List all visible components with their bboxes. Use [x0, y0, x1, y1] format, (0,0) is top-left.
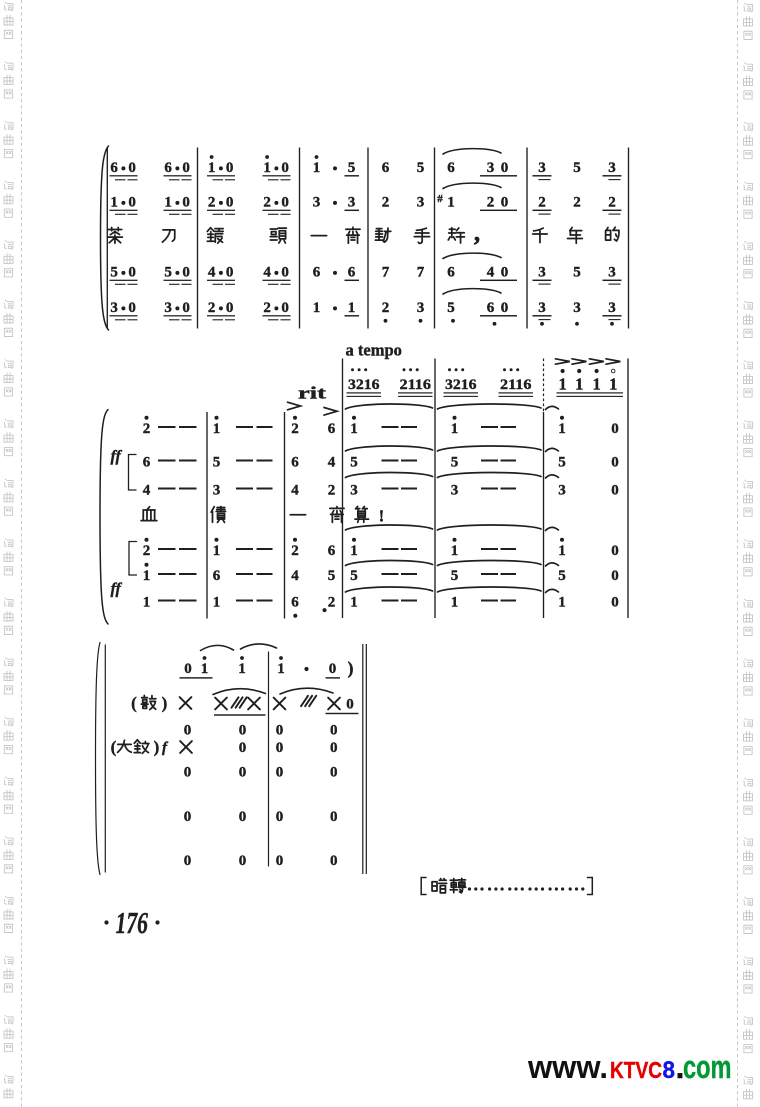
svg-text:0: 0 — [128, 160, 136, 176]
svg-text:0: 0 — [184, 853, 192, 869]
svg-text:0: 0 — [128, 194, 136, 210]
svg-text:6: 6 — [328, 543, 336, 559]
svg-text:2: 2 — [143, 421, 151, 437]
svg-text:176: 176 — [116, 905, 149, 940]
svg-text:0: 0 — [329, 661, 337, 677]
svg-text:1: 1 — [238, 661, 246, 677]
svg-text:6: 6 — [382, 160, 390, 176]
svg-text:0: 0 — [281, 160, 289, 176]
svg-text:0: 0 — [346, 696, 354, 712]
svg-text:4: 4 — [291, 482, 299, 498]
svg-text:6: 6 — [447, 160, 455, 176]
svg-text:2: 2 — [263, 194, 271, 210]
svg-text:1: 1 — [213, 594, 221, 610]
svg-text:1: 1 — [263, 160, 271, 176]
svg-text:0: 0 — [128, 300, 136, 316]
svg-text:1: 1 — [609, 374, 617, 393]
svg-text:0: 0 — [501, 194, 509, 210]
svg-text:6: 6 — [313, 264, 321, 280]
svg-text:0: 0 — [182, 264, 190, 280]
svg-text:ff: ff — [111, 448, 123, 465]
svg-text:1: 1 — [575, 374, 583, 393]
svg-text:7: 7 — [382, 264, 390, 280]
svg-text:8: 8 — [663, 1057, 676, 1084]
svg-text:!: ! — [379, 507, 385, 526]
svg-text:5: 5 — [350, 568, 358, 584]
svg-text:0: 0 — [330, 853, 338, 869]
svg-text:3: 3 — [573, 300, 581, 316]
svg-text:3216: 3216 — [348, 377, 380, 393]
svg-text:ff: ff — [111, 581, 123, 598]
svg-text:1: 1 — [348, 300, 356, 316]
svg-text:0: 0 — [128, 264, 136, 280]
svg-text:0: 0 — [184, 765, 192, 781]
svg-text:4: 4 — [487, 264, 495, 280]
svg-text:0: 0 — [184, 661, 192, 677]
svg-text:2: 2 — [328, 482, 336, 498]
svg-text:3: 3 — [213, 482, 221, 498]
svg-text:5: 5 — [573, 160, 581, 176]
svg-text:www.: www. — [527, 1049, 608, 1085]
svg-text:0: 0 — [226, 264, 234, 280]
svg-text:0: 0 — [182, 194, 190, 210]
svg-text:3: 3 — [417, 300, 425, 316]
svg-text:2116: 2116 — [400, 377, 432, 393]
svg-text:2: 2 — [143, 543, 151, 559]
svg-text:2: 2 — [573, 194, 581, 210]
svg-text:6: 6 — [487, 300, 495, 316]
svg-text:3: 3 — [538, 264, 546, 280]
svg-text:#: # — [437, 193, 443, 205]
svg-text:0: 0 — [239, 853, 247, 869]
svg-text:6: 6 — [328, 421, 336, 437]
svg-text:1: 1 — [313, 160, 321, 176]
svg-text:5: 5 — [164, 264, 172, 280]
svg-text:3: 3 — [608, 264, 616, 280]
svg-text:5: 5 — [451, 568, 459, 584]
svg-text:1: 1 — [558, 543, 566, 559]
svg-text:0: 0 — [276, 853, 284, 869]
svg-text:1: 1 — [143, 568, 151, 584]
svg-text:0: 0 — [182, 300, 190, 316]
svg-text:0: 0 — [501, 160, 509, 176]
svg-text:0: 0 — [276, 723, 284, 739]
svg-text:2: 2 — [382, 194, 390, 210]
svg-text:(: ( — [111, 738, 117, 757]
svg-text:6: 6 — [164, 160, 172, 176]
svg-text:2: 2 — [328, 594, 336, 610]
svg-text:1: 1 — [201, 661, 209, 677]
svg-text:1: 1 — [208, 160, 216, 176]
svg-text:0: 0 — [184, 809, 192, 825]
svg-text:7: 7 — [417, 264, 425, 280]
svg-text:2: 2 — [538, 194, 546, 210]
svg-text:6: 6 — [291, 594, 299, 610]
svg-text:1: 1 — [592, 374, 600, 393]
svg-text:0: 0 — [239, 723, 247, 739]
svg-text:5: 5 — [213, 454, 221, 470]
svg-text:4: 4 — [328, 454, 336, 470]
svg-text:5: 5 — [573, 264, 581, 280]
svg-text:1: 1 — [350, 543, 358, 559]
svg-text:1: 1 — [213, 543, 221, 559]
svg-text:6: 6 — [143, 454, 151, 470]
svg-text:3: 3 — [164, 300, 172, 316]
svg-text:rit: rit — [298, 384, 327, 403]
svg-text:4: 4 — [208, 264, 216, 280]
svg-text:6: 6 — [348, 264, 356, 280]
svg-text:0: 0 — [239, 740, 247, 756]
svg-text:(: ( — [131, 694, 137, 713]
svg-text:4: 4 — [291, 568, 299, 584]
svg-text:2: 2 — [208, 194, 216, 210]
svg-text:3: 3 — [538, 160, 546, 176]
svg-text:2: 2 — [382, 300, 390, 316]
svg-text:3: 3 — [313, 194, 321, 210]
svg-text:3: 3 — [608, 300, 616, 316]
svg-text:1: 1 — [558, 594, 566, 610]
svg-text:3: 3 — [538, 300, 546, 316]
svg-text:0: 0 — [611, 568, 619, 584]
svg-text:): ) — [348, 658, 354, 679]
svg-text:6: 6 — [291, 454, 299, 470]
svg-text:a tempo: a tempo — [346, 341, 402, 360]
svg-text:1: 1 — [110, 194, 118, 210]
svg-text:5: 5 — [350, 454, 358, 470]
svg-text:0: 0 — [276, 740, 284, 756]
svg-text:2116: 2116 — [500, 377, 532, 393]
svg-text:5: 5 — [348, 160, 356, 176]
svg-text:5: 5 — [417, 160, 425, 176]
svg-text:1: 1 — [451, 543, 459, 559]
svg-text:0: 0 — [281, 194, 289, 210]
svg-text:1: 1 — [451, 421, 459, 437]
svg-text:1: 1 — [350, 421, 358, 437]
svg-text:1: 1 — [447, 194, 455, 210]
svg-text:6: 6 — [110, 160, 118, 176]
svg-text:1: 1 — [277, 661, 285, 677]
svg-text:0: 0 — [239, 809, 247, 825]
svg-text:2: 2 — [487, 194, 495, 210]
svg-text:1: 1 — [558, 374, 566, 393]
svg-text:3: 3 — [558, 482, 566, 498]
svg-text:1: 1 — [451, 594, 459, 610]
svg-text:3: 3 — [487, 160, 495, 176]
svg-text:0: 0 — [226, 194, 234, 210]
svg-text:0: 0 — [330, 723, 338, 739]
svg-text:3: 3 — [348, 194, 356, 210]
svg-text:): ) — [162, 694, 168, 713]
svg-text:4: 4 — [263, 264, 271, 280]
svg-text:6: 6 — [447, 264, 455, 280]
svg-text:3: 3 — [417, 194, 425, 210]
svg-text:1: 1 — [350, 594, 358, 610]
svg-text:0: 0 — [330, 740, 338, 756]
svg-text:3: 3 — [608, 160, 616, 176]
svg-text:com: com — [683, 1049, 732, 1085]
svg-text:,: , — [474, 221, 480, 247]
svg-text:1: 1 — [213, 421, 221, 437]
svg-text:0: 0 — [330, 765, 338, 781]
svg-text:0: 0 — [184, 723, 192, 739]
svg-text:0: 0 — [611, 543, 619, 559]
svg-text:3: 3 — [350, 482, 358, 498]
svg-text:0: 0 — [239, 765, 247, 781]
svg-text:6: 6 — [213, 568, 221, 584]
svg-text:3216: 3216 — [445, 377, 477, 393]
svg-text:0: 0 — [330, 809, 338, 825]
svg-text:1: 1 — [558, 421, 566, 437]
svg-text:5: 5 — [558, 568, 566, 584]
svg-text:4: 4 — [143, 482, 151, 498]
svg-text:3: 3 — [110, 300, 118, 316]
svg-text:3: 3 — [451, 482, 459, 498]
svg-text:1: 1 — [143, 594, 151, 610]
svg-text:2: 2 — [291, 543, 299, 559]
svg-text:2: 2 — [263, 300, 271, 316]
svg-text:0: 0 — [276, 765, 284, 781]
svg-text:0: 0 — [276, 809, 284, 825]
svg-text:5: 5 — [447, 300, 455, 316]
svg-text:0: 0 — [611, 421, 619, 437]
svg-text:0: 0 — [611, 454, 619, 470]
svg-text:0: 0 — [281, 300, 289, 316]
svg-text:0: 0 — [611, 594, 619, 610]
svg-text:2: 2 — [208, 300, 216, 316]
svg-text:KTVC: KTVC — [610, 1057, 662, 1083]
svg-text:0: 0 — [281, 264, 289, 280]
svg-text:5: 5 — [558, 454, 566, 470]
svg-text:0: 0 — [501, 264, 509, 280]
svg-text:1: 1 — [164, 194, 172, 210]
svg-text:0: 0 — [182, 160, 190, 176]
svg-text:5: 5 — [328, 568, 336, 584]
svg-text:0: 0 — [226, 300, 234, 316]
svg-text:2: 2 — [608, 194, 616, 210]
svg-text:f: f — [162, 740, 169, 756]
svg-text:0: 0 — [226, 160, 234, 176]
svg-text:0: 0 — [501, 300, 509, 316]
svg-text:): ) — [154, 738, 160, 757]
svg-text:5: 5 — [451, 454, 459, 470]
svg-text:1: 1 — [313, 300, 321, 316]
svg-text:2: 2 — [291, 421, 299, 437]
svg-text:5: 5 — [110, 264, 118, 280]
svg-text:0: 0 — [611, 482, 619, 498]
